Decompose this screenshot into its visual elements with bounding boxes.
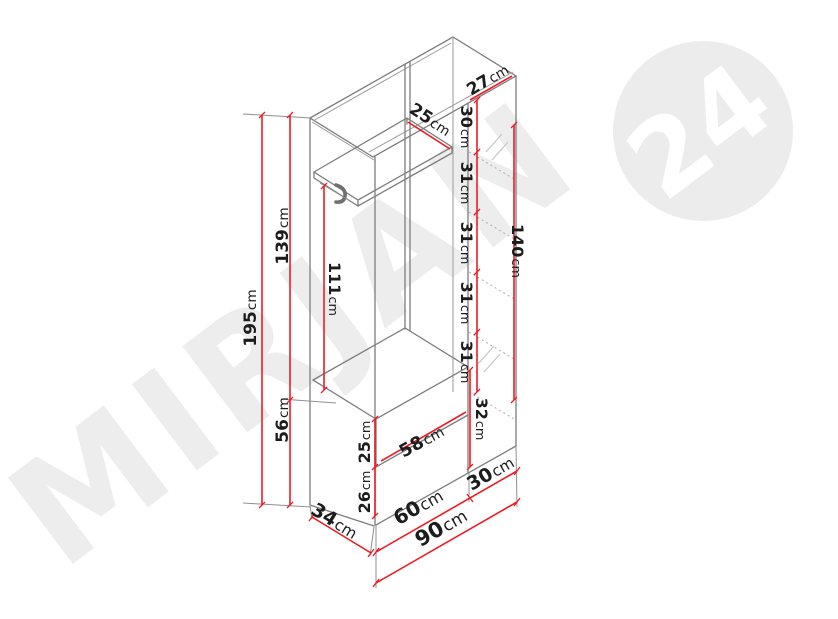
label-drawer-front-upper: 25cm (355, 421, 374, 464)
label-bench-inner-width: 58cm (396, 421, 448, 463)
label-drawer-front-lower: 26cm (355, 471, 374, 514)
label-total-height: 195cm (241, 289, 261, 346)
diagram-canvas: MIRJAN 24 (0, 0, 838, 619)
label-right-section-width: 30cm (463, 451, 518, 495)
watermark-brand-text: MIRJAN (0, 67, 608, 600)
label-upper-section-height: 139cm (273, 207, 293, 264)
wardrobe-dimension-diagram: MIRJAN 24 (0, 0, 838, 619)
left-panel-inner-edge (312, 122, 374, 160)
label-column-gap-3: 31cm (457, 282, 476, 325)
label-cabinet-depth: 34cm (307, 499, 362, 544)
label-column-bottom-compartment: 32cm (472, 398, 491, 441)
label-column-gap-4: 31cm (457, 341, 476, 384)
label-bench-height: 56cm (273, 397, 293, 442)
label-column-glass-height: 140cm (508, 224, 527, 278)
